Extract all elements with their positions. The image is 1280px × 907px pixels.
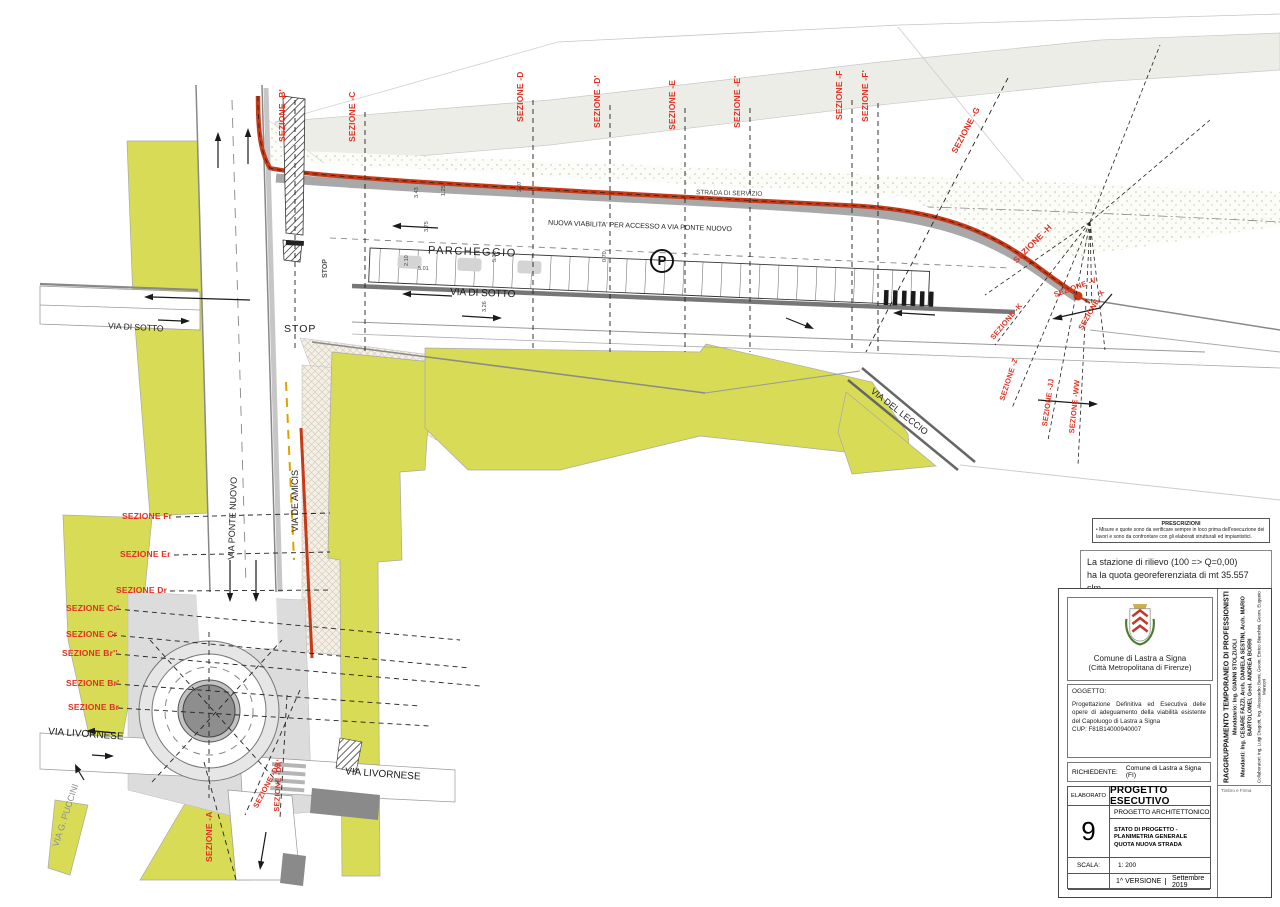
section-label-d: SEZIONE -D [515, 71, 525, 122]
municipality-crest [1123, 601, 1157, 647]
section-label-cr: SEZIONE Cr [66, 629, 117, 639]
section-label-b1: SEZIONE -B' [277, 89, 287, 142]
dimension-label: 3.26 [482, 301, 488, 312]
dimension-label: 5.36 [492, 251, 498, 262]
section-label-br2: SEZIONE Br'' [62, 648, 118, 658]
oggetto-text: Progettazione Definitiva ed Esecutiva de… [1072, 701, 1206, 726]
team-strip: RAGGRUPPAMENTO TEMPORANEO DI PROFESSIONI… [1217, 589, 1272, 786]
team-text: RAGGRUPPAMENTO TEMPORANEO DI PROFESSIONI… [1218, 589, 1272, 785]
richiedente-box: RICHIEDENTE: Comune di Lastra a Signa (F… [1067, 762, 1211, 782]
prescrizioni-body: • Misure e quote sono da verificare semp… [1096, 527, 1266, 540]
sheet-title: STATO DI PROGETTO - PLANIMETRIA GENERALE… [1110, 819, 1210, 858]
section-label-f1: SEZIONE -F' [860, 70, 870, 122]
section-label-er: SEZIONE Er [120, 549, 171, 559]
team-collaboratori: Collaboratori: Ing. Luigi Dragotti, Ing.… [1256, 591, 1266, 783]
elaborato-label: ELABORATO [1068, 787, 1110, 806]
street-label-strada-di-servizio: STRADA DI SERVIZIO [696, 188, 763, 200]
municipality-subtitle: (Città Metropolitana di Firenze) [1068, 663, 1212, 672]
section-label-br: SEZIONE Br [68, 702, 119, 712]
dimension-label: 3.75 [424, 221, 430, 232]
scala-label: SCALA: [1068, 858, 1110, 874]
section-label-br1: SEZIONE Br' [66, 678, 119, 688]
dimension-label: 0.70 [602, 251, 608, 262]
section-label-e1: SEZIONE -E' [732, 76, 742, 128]
elaborato-table: ELABORATO PROGETTO ESECUTIVO 9 PROGETTO … [1067, 786, 1211, 889]
section-label-c: SEZIONE -C [347, 91, 357, 142]
sheet-title-line2: PLANIMETRIA GENERALE [1114, 834, 1187, 842]
team-mandatario: Mandatario: Ing. GIANNI STOLZUOLI [1233, 591, 1239, 783]
section-label-e: SEZIONE -E [667, 80, 677, 130]
team-mandanti: Mandanti: Ing. CESARE FAZZI, Arch. DANIE… [1241, 591, 1255, 783]
street-label-via-de-amicis: VIA DE AMICIS [290, 470, 300, 532]
municipality-name: Comune di Lastra a Signa [1068, 654, 1212, 663]
dimension-label: 2.07 [517, 181, 523, 192]
sheet-number: 9 [1068, 806, 1110, 858]
oggetto-label: OGGETTO: [1072, 688, 1206, 695]
oggetto-box: OGGETTO: Progettazione Definitiva ed Ese… [1067, 684, 1211, 758]
section-label-a: SEZIONE -A [204, 811, 214, 862]
section-label-dr: SEZIONE Dr [116, 585, 167, 595]
timbro-label: Timbro e Firma [1221, 788, 1251, 793]
dimension-label: 5.01 [418, 266, 429, 272]
team-group-name: RAGGRUPPAMENTO TEMPORANEO DI PROFESSIONI… [1224, 591, 1231, 783]
title-block: Comune di Lastra a Signa (Città Metropol… [1058, 588, 1272, 898]
scala-value: 1: 200 [1110, 858, 1210, 874]
version-date: Settembre 2019 [1166, 875, 1210, 889]
municipality-box: Comune di Lastra a Signa (Città Metropol… [1067, 597, 1213, 681]
sheet-title-line1: STATO DI PROGETTO - [1114, 827, 1178, 835]
street-label-stop: STOP [284, 324, 316, 334]
prescrizioni-note: PRESCRIZIONI • Misure e quote sono da ve… [1092, 518, 1270, 543]
richiedente-label: RICHIEDENTE: [1072, 769, 1118, 776]
dimension-label: 1.25 [441, 185, 447, 196]
project-title: PROGETTO ESECUTIVO [1110, 787, 1210, 806]
parking-symbol: P [650, 249, 674, 273]
section-label-f: SEZIONE -F [834, 70, 844, 120]
street-label-parcheggio: PARCHEGGIO [428, 245, 517, 258]
sheet-title-line3: QUOTA NUOVA STRADA [1114, 842, 1182, 850]
section-label-fr: SEZIONE Fr [122, 511, 172, 521]
empty-cell [1068, 874, 1110, 890]
dimension-label: 3.43 [414, 187, 420, 198]
project-subtitle: PROGETTO ARCHITETTONICO [1110, 806, 1210, 819]
richiedente-value: Comune di Lastra a Signa (FI) [1126, 765, 1206, 779]
version-label: 1^ VERSIONE [1110, 878, 1166, 885]
cup-code: CUP: F81B14000940007 [1072, 726, 1206, 733]
dimension-label: 2.10 [404, 255, 410, 266]
timbro-box: Timbro e Firma [1217, 785, 1271, 897]
section-label-d1: SEZIONE -D' [592, 75, 602, 128]
version-row: 1^ VERSIONE Settembre 2019 [1110, 874, 1210, 890]
plan-sheet: VIA DI SOTTO STOP STOP VIA PONTE NUOVO V… [0, 0, 1280, 907]
section-label-cr1: SEZIONE Cr' [66, 603, 119, 613]
road-marking-stop: STOP [321, 259, 331, 278]
station-note-line1: La stazione di rilievo (100 => Q=0,00) [1087, 556, 1265, 569]
